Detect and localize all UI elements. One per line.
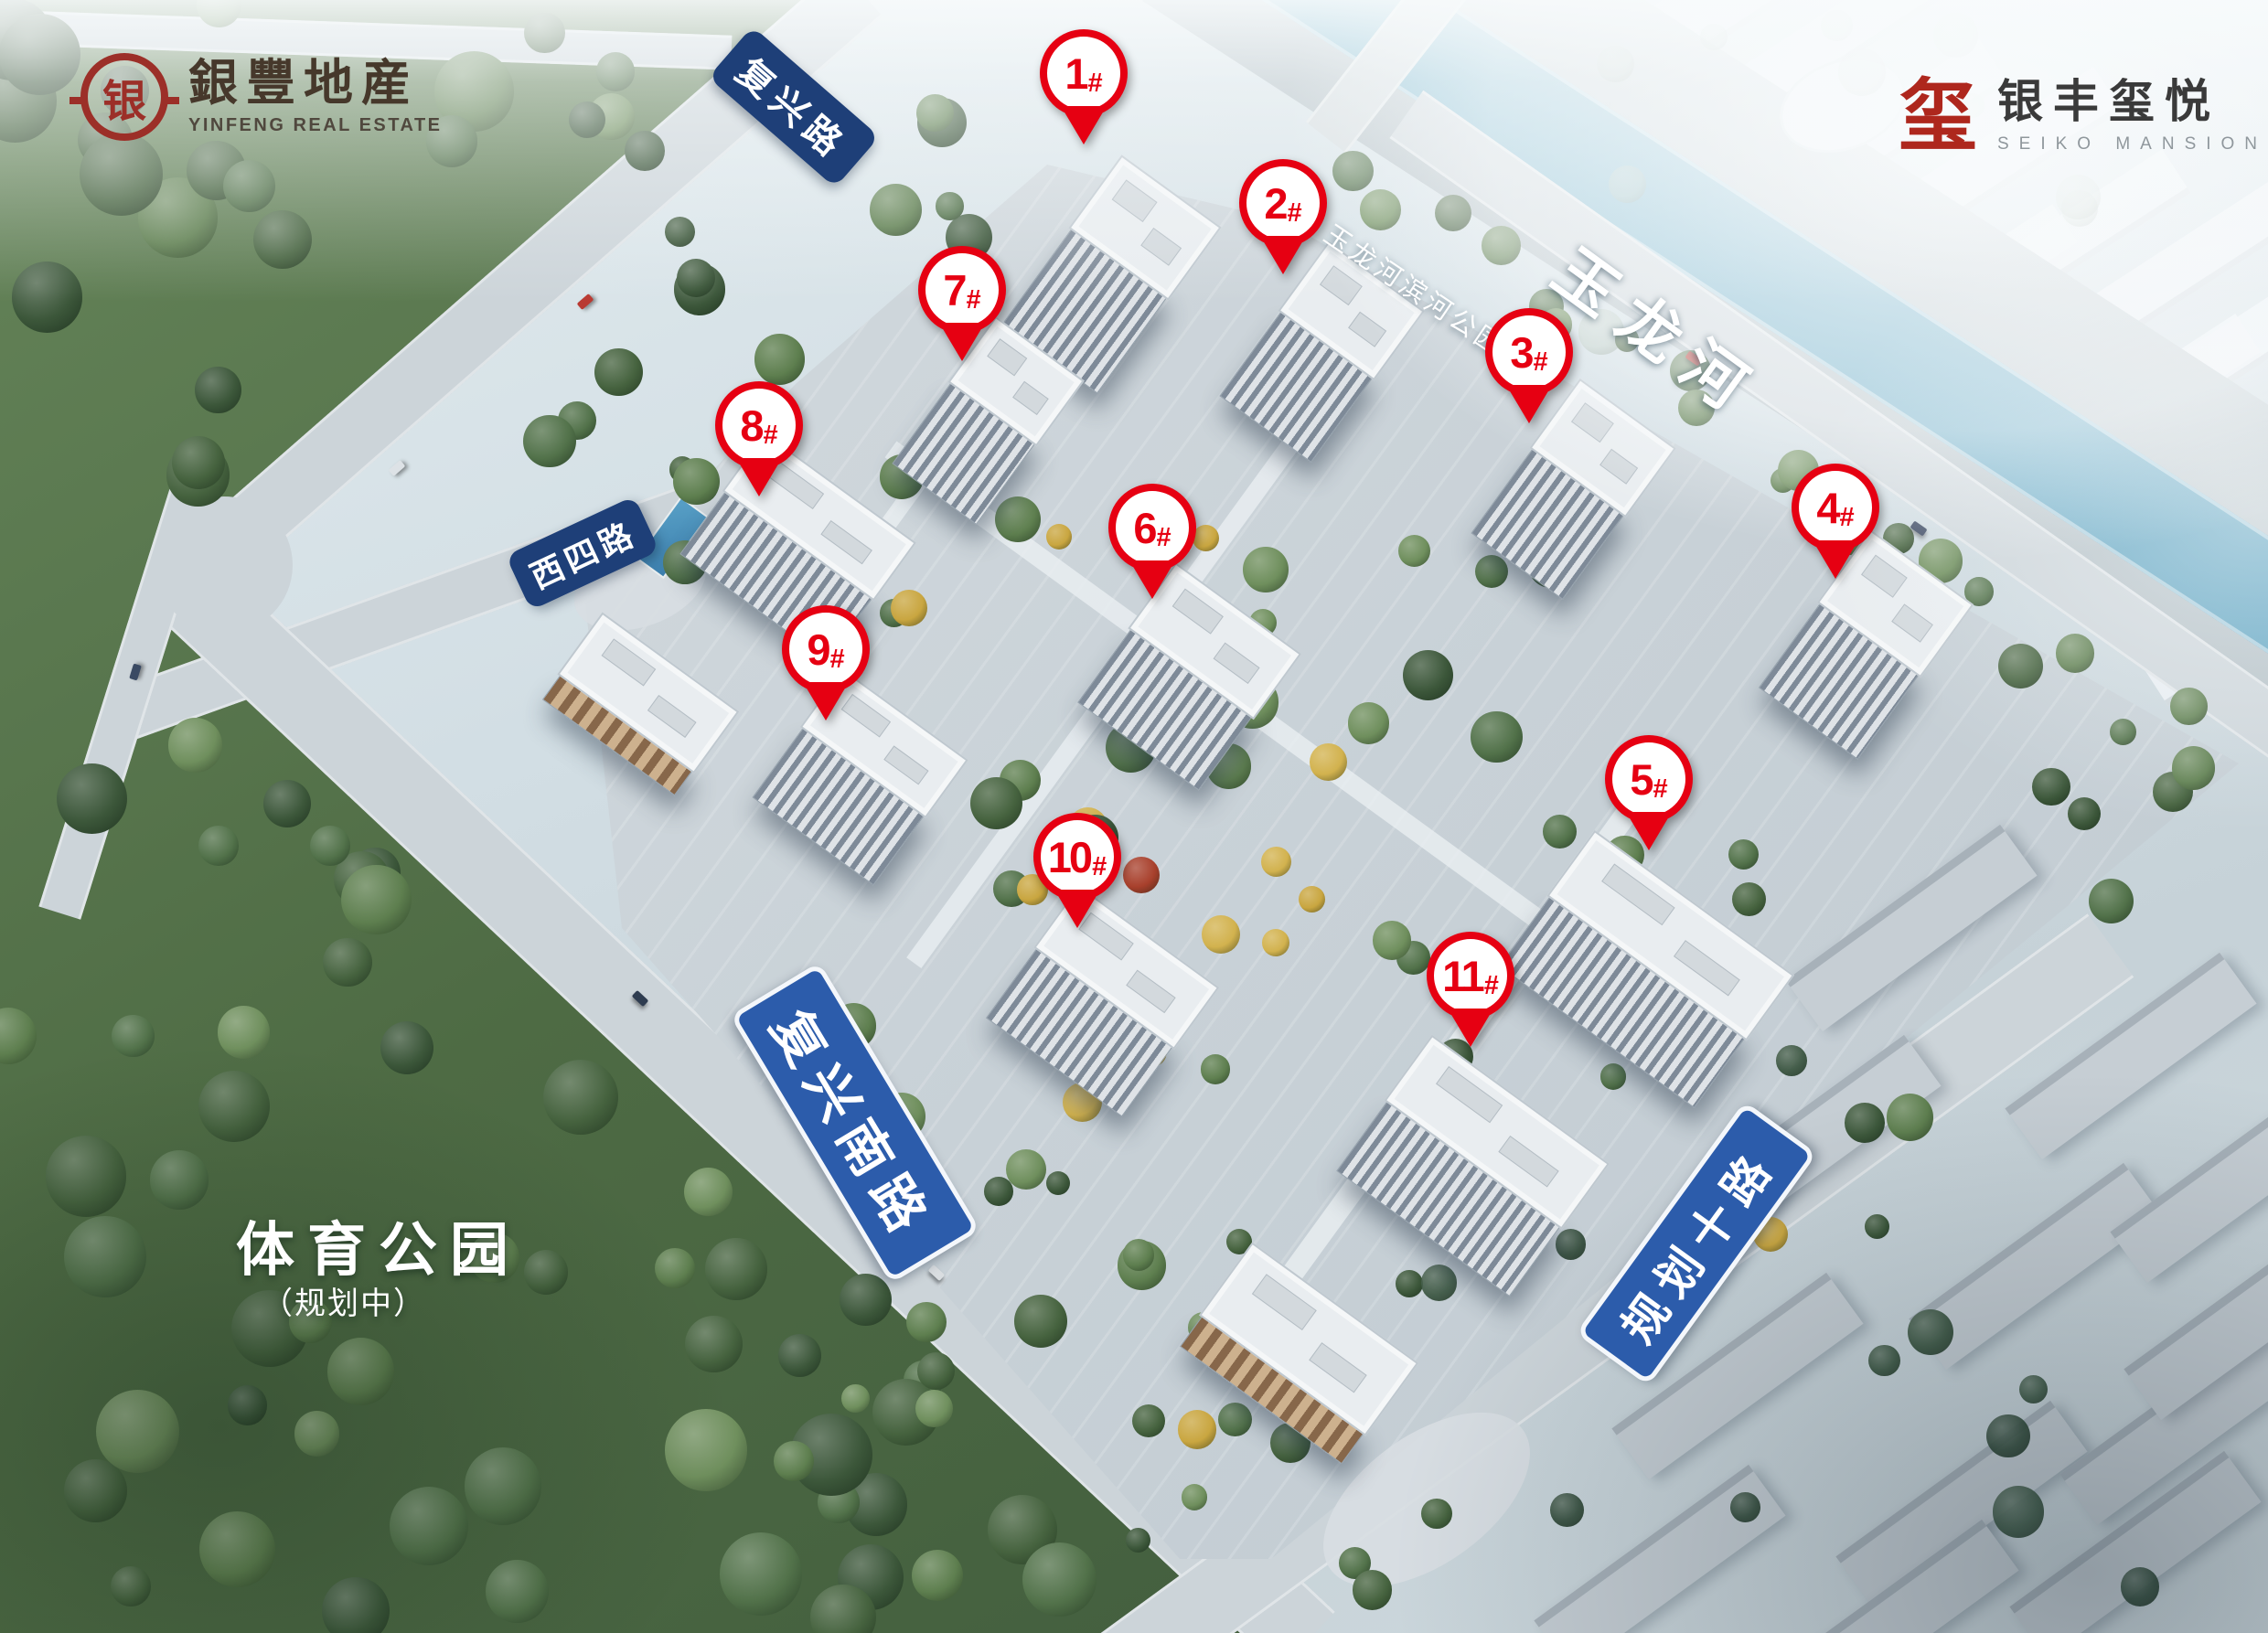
building-marker-1: 1# (1040, 29, 1128, 144)
marker-number: 1 (1064, 52, 1086, 95)
marker-circle: 9# (782, 605, 870, 693)
building-marker-11: 11# (1427, 932, 1514, 1047)
marker-circle: 4# (1792, 464, 1879, 551)
building-marker-8: 8# (715, 381, 803, 496)
building-marker-7: 7# (918, 246, 1006, 361)
marker-circle: 10# (1033, 813, 1121, 901)
marker-pointer-icon (939, 323, 985, 361)
building-marker-2: 2# (1239, 159, 1327, 274)
marker-circle: 6# (1108, 484, 1196, 571)
developer-name-en: YINFENG REAL ESTATE (188, 115, 443, 136)
marker-hash: # (1157, 525, 1171, 551)
marker-hash: # (1088, 70, 1103, 97)
marker-hash: # (1653, 776, 1668, 803)
marker-number: 11 (1442, 955, 1482, 998)
building-marker-3: 3# (1485, 308, 1573, 423)
marker-number: 4 (1816, 486, 1837, 529)
marker-number: 5 (1630, 758, 1651, 801)
marker-pointer-icon (736, 458, 782, 496)
masterplan-scene: 玉龙河玉龙河滨河公园 复兴路西四路复兴南路规划十路 1#2#3#4#5#6#7#… (0, 0, 2268, 1633)
top-haze (0, 0, 2268, 1633)
marker-pointer-icon (1061, 106, 1107, 144)
marker-number: 2 (1264, 182, 1285, 225)
marker-circle: 8# (715, 381, 803, 469)
marker-hash: # (1484, 973, 1499, 999)
marker-hash: # (1288, 200, 1302, 227)
marker-hash: # (1840, 505, 1855, 531)
marker-pointer-icon (1129, 560, 1175, 599)
marker-number: 10 (1048, 836, 1090, 879)
marker-pointer-icon (803, 682, 849, 720)
project-logo: 玺 银丰玺悦 SEIKO MANSION (1899, 77, 2267, 155)
project-name-en: SEIKO MANSION (1997, 134, 2267, 155)
marker-circle: 2# (1239, 159, 1327, 247)
sports-park-status-label: （规划中） (262, 1278, 426, 1323)
marker-circle: 1# (1040, 29, 1128, 117)
marker-number: 8 (740, 404, 761, 447)
marker-pointer-icon (1506, 385, 1552, 423)
marker-hash: # (967, 287, 981, 314)
project-name-cn: 银丰玺悦 (1997, 78, 2267, 126)
developer-logo: 银 銀豐地産 YINFENG REAL ESTATE (80, 53, 443, 141)
marker-pointer-icon (1054, 890, 1100, 928)
building-marker-9: 9# (782, 605, 870, 720)
project-seal-icon: 玺 (1899, 77, 1977, 155)
building-marker-10: 10# (1033, 813, 1121, 928)
marker-pointer-icon (1448, 1009, 1493, 1047)
marker-pointer-icon (1626, 812, 1672, 850)
marker-hash: # (764, 422, 778, 449)
marker-hash: # (1092, 854, 1107, 881)
marker-pointer-icon (1813, 540, 1858, 579)
developer-name-cn: 銀豐地産 (188, 58, 443, 110)
marker-number: 7 (943, 269, 964, 312)
sports-park-label: 体育公园 (236, 1203, 521, 1287)
marker-number: 9 (807, 628, 828, 671)
marker-hash: # (830, 646, 845, 673)
project-seal-glyph: 玺 (1899, 72, 1977, 160)
marker-circle: 7# (918, 246, 1006, 334)
building-marker-4: 4# (1792, 464, 1879, 579)
marker-hash: # (1534, 349, 1548, 376)
marker-number: 3 (1510, 331, 1531, 374)
marker-circle: 11# (1427, 932, 1514, 1019)
marker-number: 6 (1133, 507, 1154, 550)
developer-seal-icon: 银 (80, 53, 168, 141)
marker-circle: 3# (1485, 308, 1573, 396)
building-marker-6: 6# (1108, 484, 1196, 599)
building-marker-5: 5# (1605, 735, 1693, 850)
marker-circle: 5# (1605, 735, 1693, 823)
developer-seal-glyph: 银 (102, 65, 146, 129)
marker-pointer-icon (1260, 236, 1306, 274)
